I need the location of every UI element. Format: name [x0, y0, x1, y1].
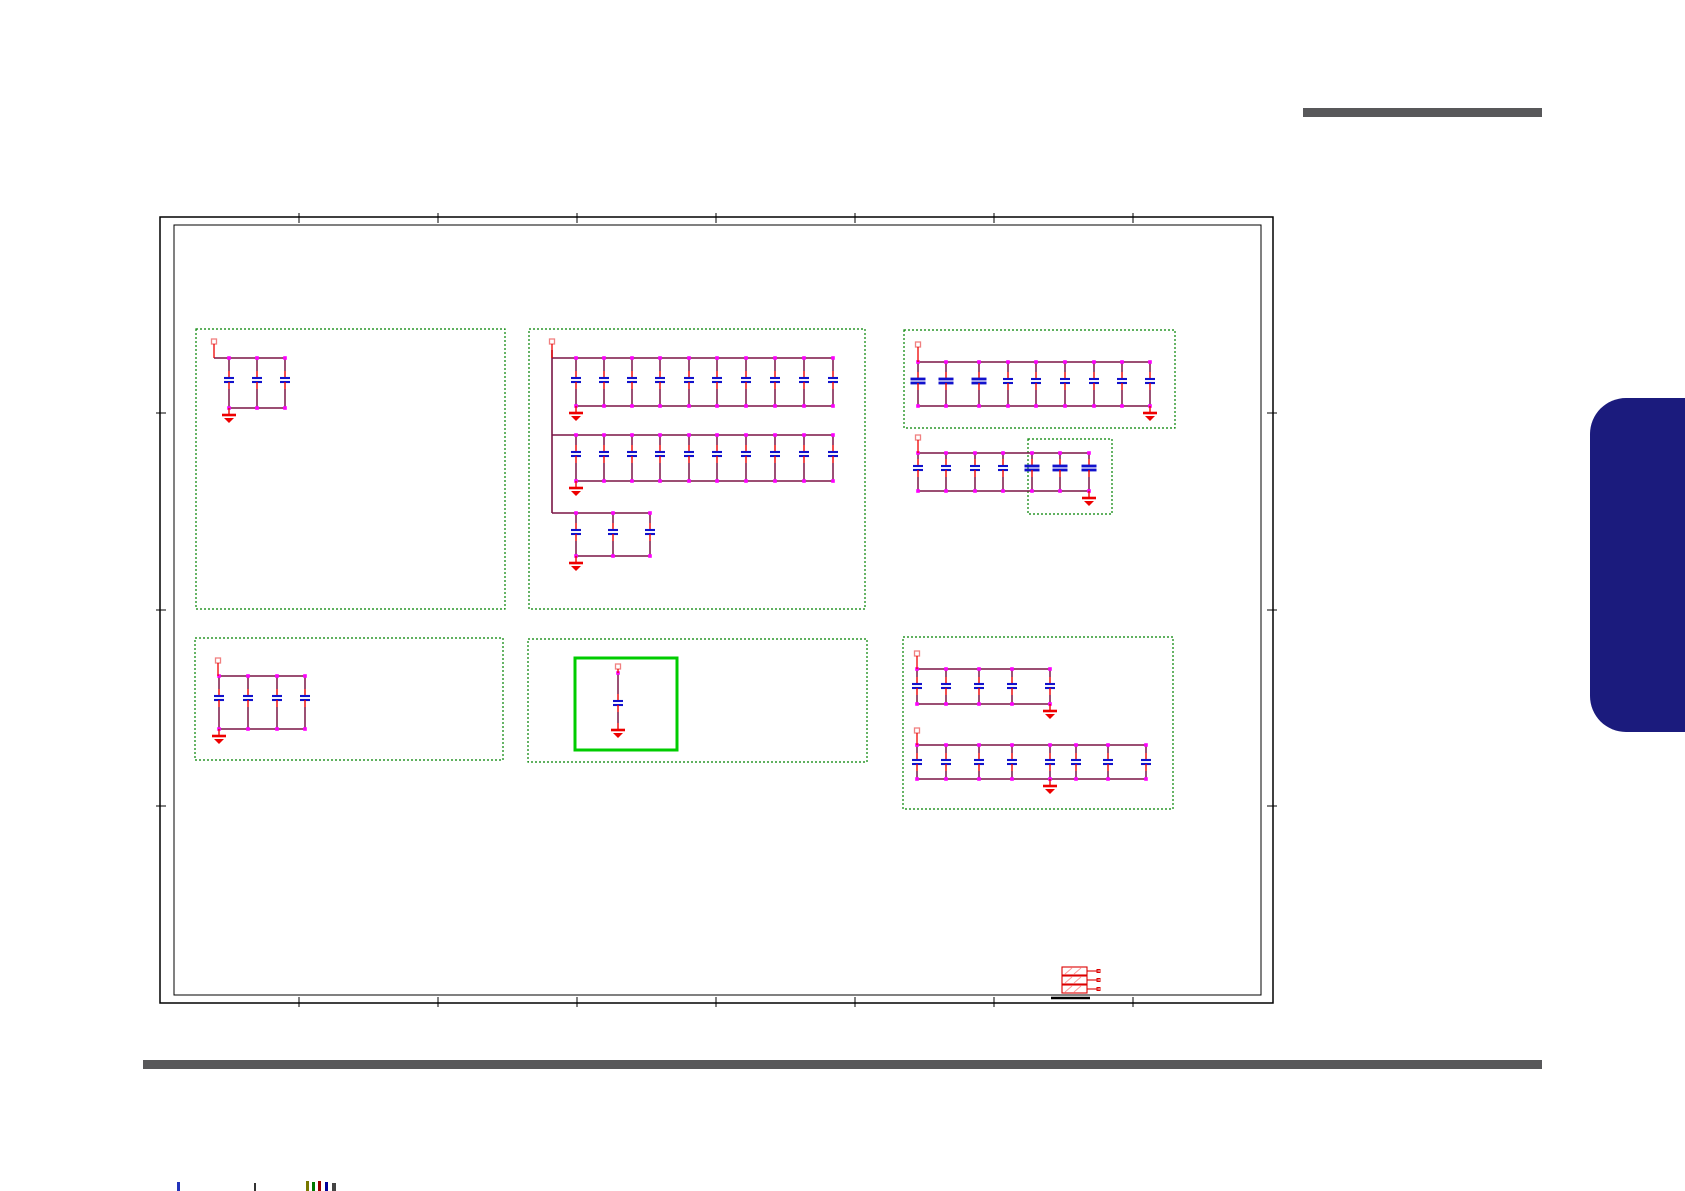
ground-icon — [1043, 779, 1057, 794]
junction-dot — [283, 356, 287, 360]
junction-dot — [574, 356, 578, 360]
ground-icon — [569, 556, 583, 571]
junction-dot — [1030, 451, 1034, 455]
junction-dot — [977, 702, 981, 706]
schematic-sheet — [0, 0, 1685, 1191]
capacitor — [939, 360, 954, 408]
capacitor — [974, 743, 984, 781]
junction-dot — [977, 777, 981, 781]
cap-bank — [611, 664, 625, 738]
ground-triangle — [571, 566, 581, 571]
junction-dot — [303, 727, 307, 731]
junction-dot — [831, 479, 835, 483]
capacitor — [712, 433, 722, 483]
capacitor — [571, 356, 581, 408]
capacitor — [1007, 667, 1017, 706]
capacitor — [1007, 743, 1017, 781]
capacitor — [912, 667, 922, 706]
ground-icon — [611, 723, 625, 738]
junction-dot — [658, 433, 662, 437]
group-boxes — [195, 329, 1175, 809]
power-pin-icon — [550, 339, 555, 358]
junction-dot — [1034, 404, 1038, 408]
capacitor — [655, 433, 665, 483]
sheet-border — [156, 213, 1277, 1007]
junction-dot — [687, 479, 691, 483]
connector-symbol — [1051, 967, 1100, 998]
junction-dot — [1092, 404, 1096, 408]
footer-micro-mark — [318, 1181, 321, 1191]
junction-dot — [773, 433, 777, 437]
capacitor — [1053, 451, 1068, 493]
capacitor — [770, 433, 780, 483]
junction-dot — [648, 511, 652, 515]
junction-dot — [802, 479, 806, 483]
ground-icon — [212, 729, 226, 744]
junction-dot — [275, 674, 279, 678]
cap-bank — [550, 339, 839, 513]
ground-icon — [1143, 406, 1157, 421]
junction-dot — [1120, 360, 1124, 364]
cap-bank — [913, 435, 1097, 506]
connector-hatch — [1065, 977, 1072, 983]
footer-micro-mark — [332, 1183, 336, 1191]
power-pin-icon — [916, 435, 921, 453]
junction-dot — [973, 451, 977, 455]
capacitor — [913, 451, 923, 493]
junction-dot — [574, 511, 578, 515]
junction-dot — [1063, 360, 1067, 364]
power-pin-icon — [915, 651, 920, 669]
junction-dot — [977, 360, 981, 364]
junction-dot — [944, 451, 948, 455]
cap-bank — [212, 339, 291, 423]
connector-hatch — [1065, 986, 1072, 992]
junction-dot — [831, 356, 835, 360]
junction-dot — [1001, 489, 1005, 493]
pin-square — [916, 342, 921, 347]
junction-dot — [283, 406, 287, 410]
power-pin-icon — [915, 728, 920, 745]
junction-dot — [744, 433, 748, 437]
pin-square — [216, 658, 221, 663]
pin-square — [550, 339, 555, 344]
junction-dot — [1058, 489, 1062, 493]
footer-micro-mark — [312, 1182, 315, 1191]
junction-dot — [831, 433, 835, 437]
cap-bank — [552, 511, 655, 571]
cap-bank — [912, 651, 1057, 719]
ground-icon — [1043, 704, 1057, 719]
capacitor — [684, 433, 694, 483]
footer-micro-mark — [325, 1182, 328, 1191]
junction-dot — [915, 777, 919, 781]
junction-dot — [802, 356, 806, 360]
capacitor — [974, 667, 984, 706]
junction-dot — [687, 356, 691, 360]
ground-triangle — [1145, 416, 1155, 421]
junction-dot — [944, 702, 948, 706]
sheet-inner-border — [174, 225, 1261, 995]
junction-dot — [744, 356, 748, 360]
capacitor — [941, 667, 951, 706]
junction-dot — [977, 404, 981, 408]
capacitor — [1045, 743, 1055, 781]
cap-bank — [912, 728, 1151, 794]
junction-dot — [744, 404, 748, 408]
junction-dot — [1120, 404, 1124, 408]
capacitor — [1117, 360, 1127, 408]
capacitor — [627, 433, 637, 483]
capacitor — [608, 511, 618, 558]
capacitor — [1003, 360, 1013, 408]
ground-icon — [569, 481, 583, 496]
junction-dot — [715, 479, 719, 483]
footer-micro-mark — [177, 1182, 180, 1191]
capacitor — [941, 743, 951, 781]
junction-dot — [944, 743, 948, 747]
junction-dot — [611, 511, 615, 515]
power-pin-icon — [916, 342, 921, 362]
page-canvas — [0, 0, 1685, 1191]
junction-dot — [916, 489, 920, 493]
capacitor — [1071, 743, 1081, 781]
junction-dot — [1006, 404, 1010, 408]
ground-icon — [569, 406, 583, 421]
junction-dot — [658, 479, 662, 483]
connector-hatch — [1074, 968, 1081, 974]
junction-dot — [831, 404, 835, 408]
capacitor — [970, 451, 980, 493]
junction-dot — [255, 356, 259, 360]
capacitor — [627, 356, 637, 408]
junction-dot — [658, 356, 662, 360]
junction-dot — [1006, 360, 1010, 364]
junction-dot — [1058, 451, 1062, 455]
capacitor — [224, 356, 234, 410]
junction-dot — [1034, 360, 1038, 364]
ground-icon — [222, 408, 236, 423]
junction-dot — [715, 356, 719, 360]
junction-dot — [1063, 404, 1067, 408]
junction-dot — [630, 404, 634, 408]
ground-triangle — [613, 733, 623, 738]
connector-hatch — [1065, 968, 1072, 974]
junction-dot — [773, 479, 777, 483]
power-pin-icon — [216, 658, 221, 676]
capacitor — [941, 451, 951, 493]
junction-dot — [944, 667, 948, 671]
connector-hatch — [1074, 977, 1081, 983]
pin-square — [616, 664, 621, 669]
capacitor — [280, 356, 290, 410]
footer-micro-mark — [254, 1183, 256, 1191]
ground-triangle — [224, 418, 234, 423]
junction-dot — [255, 406, 259, 410]
group-box-highlight — [575, 658, 677, 750]
junction-dot — [602, 479, 606, 483]
junction-dot — [1106, 777, 1110, 781]
capacitor — [214, 674, 224, 731]
ground-triangle — [571, 491, 581, 496]
capacitor — [1082, 451, 1097, 493]
capacitor — [300, 674, 310, 731]
capacitor — [770, 356, 780, 408]
junction-dot — [574, 433, 578, 437]
junction-dot — [944, 404, 948, 408]
capacitor — [571, 433, 581, 483]
ground-triangle — [1045, 714, 1055, 719]
junction-dot — [773, 356, 777, 360]
junction-dot — [1144, 777, 1148, 781]
junction-dot — [602, 404, 606, 408]
junction-dot — [802, 404, 806, 408]
pin-square — [212, 339, 217, 344]
cap-bank — [552, 433, 838, 496]
junction-dot — [977, 667, 981, 671]
junction-dot — [973, 489, 977, 493]
junction-dot — [630, 356, 634, 360]
capacitor — [741, 356, 751, 408]
capacitor — [1045, 667, 1055, 706]
capacitor — [1141, 743, 1151, 781]
junction-dot — [715, 404, 719, 408]
junction-dot — [1092, 360, 1096, 364]
group-box — [196, 329, 505, 609]
junction-dot — [977, 743, 981, 747]
ground-triangle — [571, 416, 581, 421]
junction-dot — [630, 479, 634, 483]
junction-dot — [802, 433, 806, 437]
junction-dot — [1010, 667, 1014, 671]
capacitor — [599, 356, 609, 408]
junction-dot — [602, 433, 606, 437]
junction-dot — [227, 356, 231, 360]
junction-dot — [687, 433, 691, 437]
capacitor — [252, 356, 262, 410]
capacitor — [684, 356, 694, 408]
ground-triangle — [214, 739, 224, 744]
capacitor — [912, 743, 922, 781]
sheet-outer-border — [160, 217, 1273, 1003]
capacitor — [599, 433, 609, 483]
capacitor — [828, 433, 838, 483]
ground-icon — [1082, 491, 1096, 506]
junction-dot — [915, 702, 919, 706]
capacitor — [655, 356, 665, 408]
junction-dot — [1010, 743, 1014, 747]
capacitor — [998, 451, 1008, 493]
capacitor — [799, 433, 809, 483]
junction-dot — [944, 489, 948, 493]
group-box — [1028, 439, 1112, 514]
junction-dot — [1001, 451, 1005, 455]
junction-dot — [602, 356, 606, 360]
junction-dot — [611, 554, 615, 558]
capacitor — [1025, 451, 1040, 493]
junction-dot — [1010, 702, 1014, 706]
junction-dot — [1087, 451, 1091, 455]
junction-dot — [275, 727, 279, 731]
capacitor — [613, 671, 623, 712]
pin-square — [916, 435, 921, 440]
capacitor — [741, 433, 751, 483]
junction-dot — [1144, 743, 1148, 747]
junction-dot — [246, 727, 250, 731]
junction-dot — [658, 404, 662, 408]
pin-square — [915, 651, 920, 656]
capacitor — [1145, 360, 1155, 408]
junction-dot — [773, 404, 777, 408]
junction-dot — [1148, 360, 1152, 364]
junction-dot — [944, 777, 948, 781]
capacitor — [911, 360, 926, 408]
capacitor — [272, 674, 282, 731]
connector-hatch — [1074, 986, 1081, 992]
capacitor — [1103, 743, 1113, 781]
junction-dot — [1010, 777, 1014, 781]
junction-dot — [1030, 489, 1034, 493]
capacitor — [1060, 360, 1070, 408]
power-pin-icon — [212, 339, 217, 358]
ground-triangle — [1084, 501, 1094, 506]
junction-dot — [1074, 743, 1078, 747]
cap-bank — [212, 658, 310, 744]
junction-dot — [648, 554, 652, 558]
capacitor — [645, 511, 655, 558]
junction-dot — [687, 404, 691, 408]
capacitor — [243, 674, 253, 731]
capacitor — [972, 360, 987, 408]
capacitor — [1031, 360, 1041, 408]
group-box — [903, 637, 1173, 809]
junction-dot — [744, 479, 748, 483]
pin-square — [915, 728, 920, 733]
capacitor — [712, 356, 722, 408]
cap-bank — [911, 342, 1158, 421]
junction-dot — [944, 360, 948, 364]
junction-dot — [1106, 743, 1110, 747]
ground-triangle — [1045, 789, 1055, 794]
capacitor — [1089, 360, 1099, 408]
group-box — [195, 638, 503, 760]
junction-dot — [1074, 777, 1078, 781]
junction-dot — [630, 433, 634, 437]
junction-dot — [1048, 667, 1052, 671]
capacitor — [799, 356, 809, 408]
capacitor — [828, 356, 838, 408]
junction-dot — [246, 674, 250, 678]
junction-dot — [715, 433, 719, 437]
junction-dot — [303, 674, 307, 678]
capacitor — [571, 511, 581, 558]
junction-dot — [1048, 743, 1052, 747]
junction-dot — [916, 404, 920, 408]
footer-micro-mark — [306, 1181, 309, 1191]
